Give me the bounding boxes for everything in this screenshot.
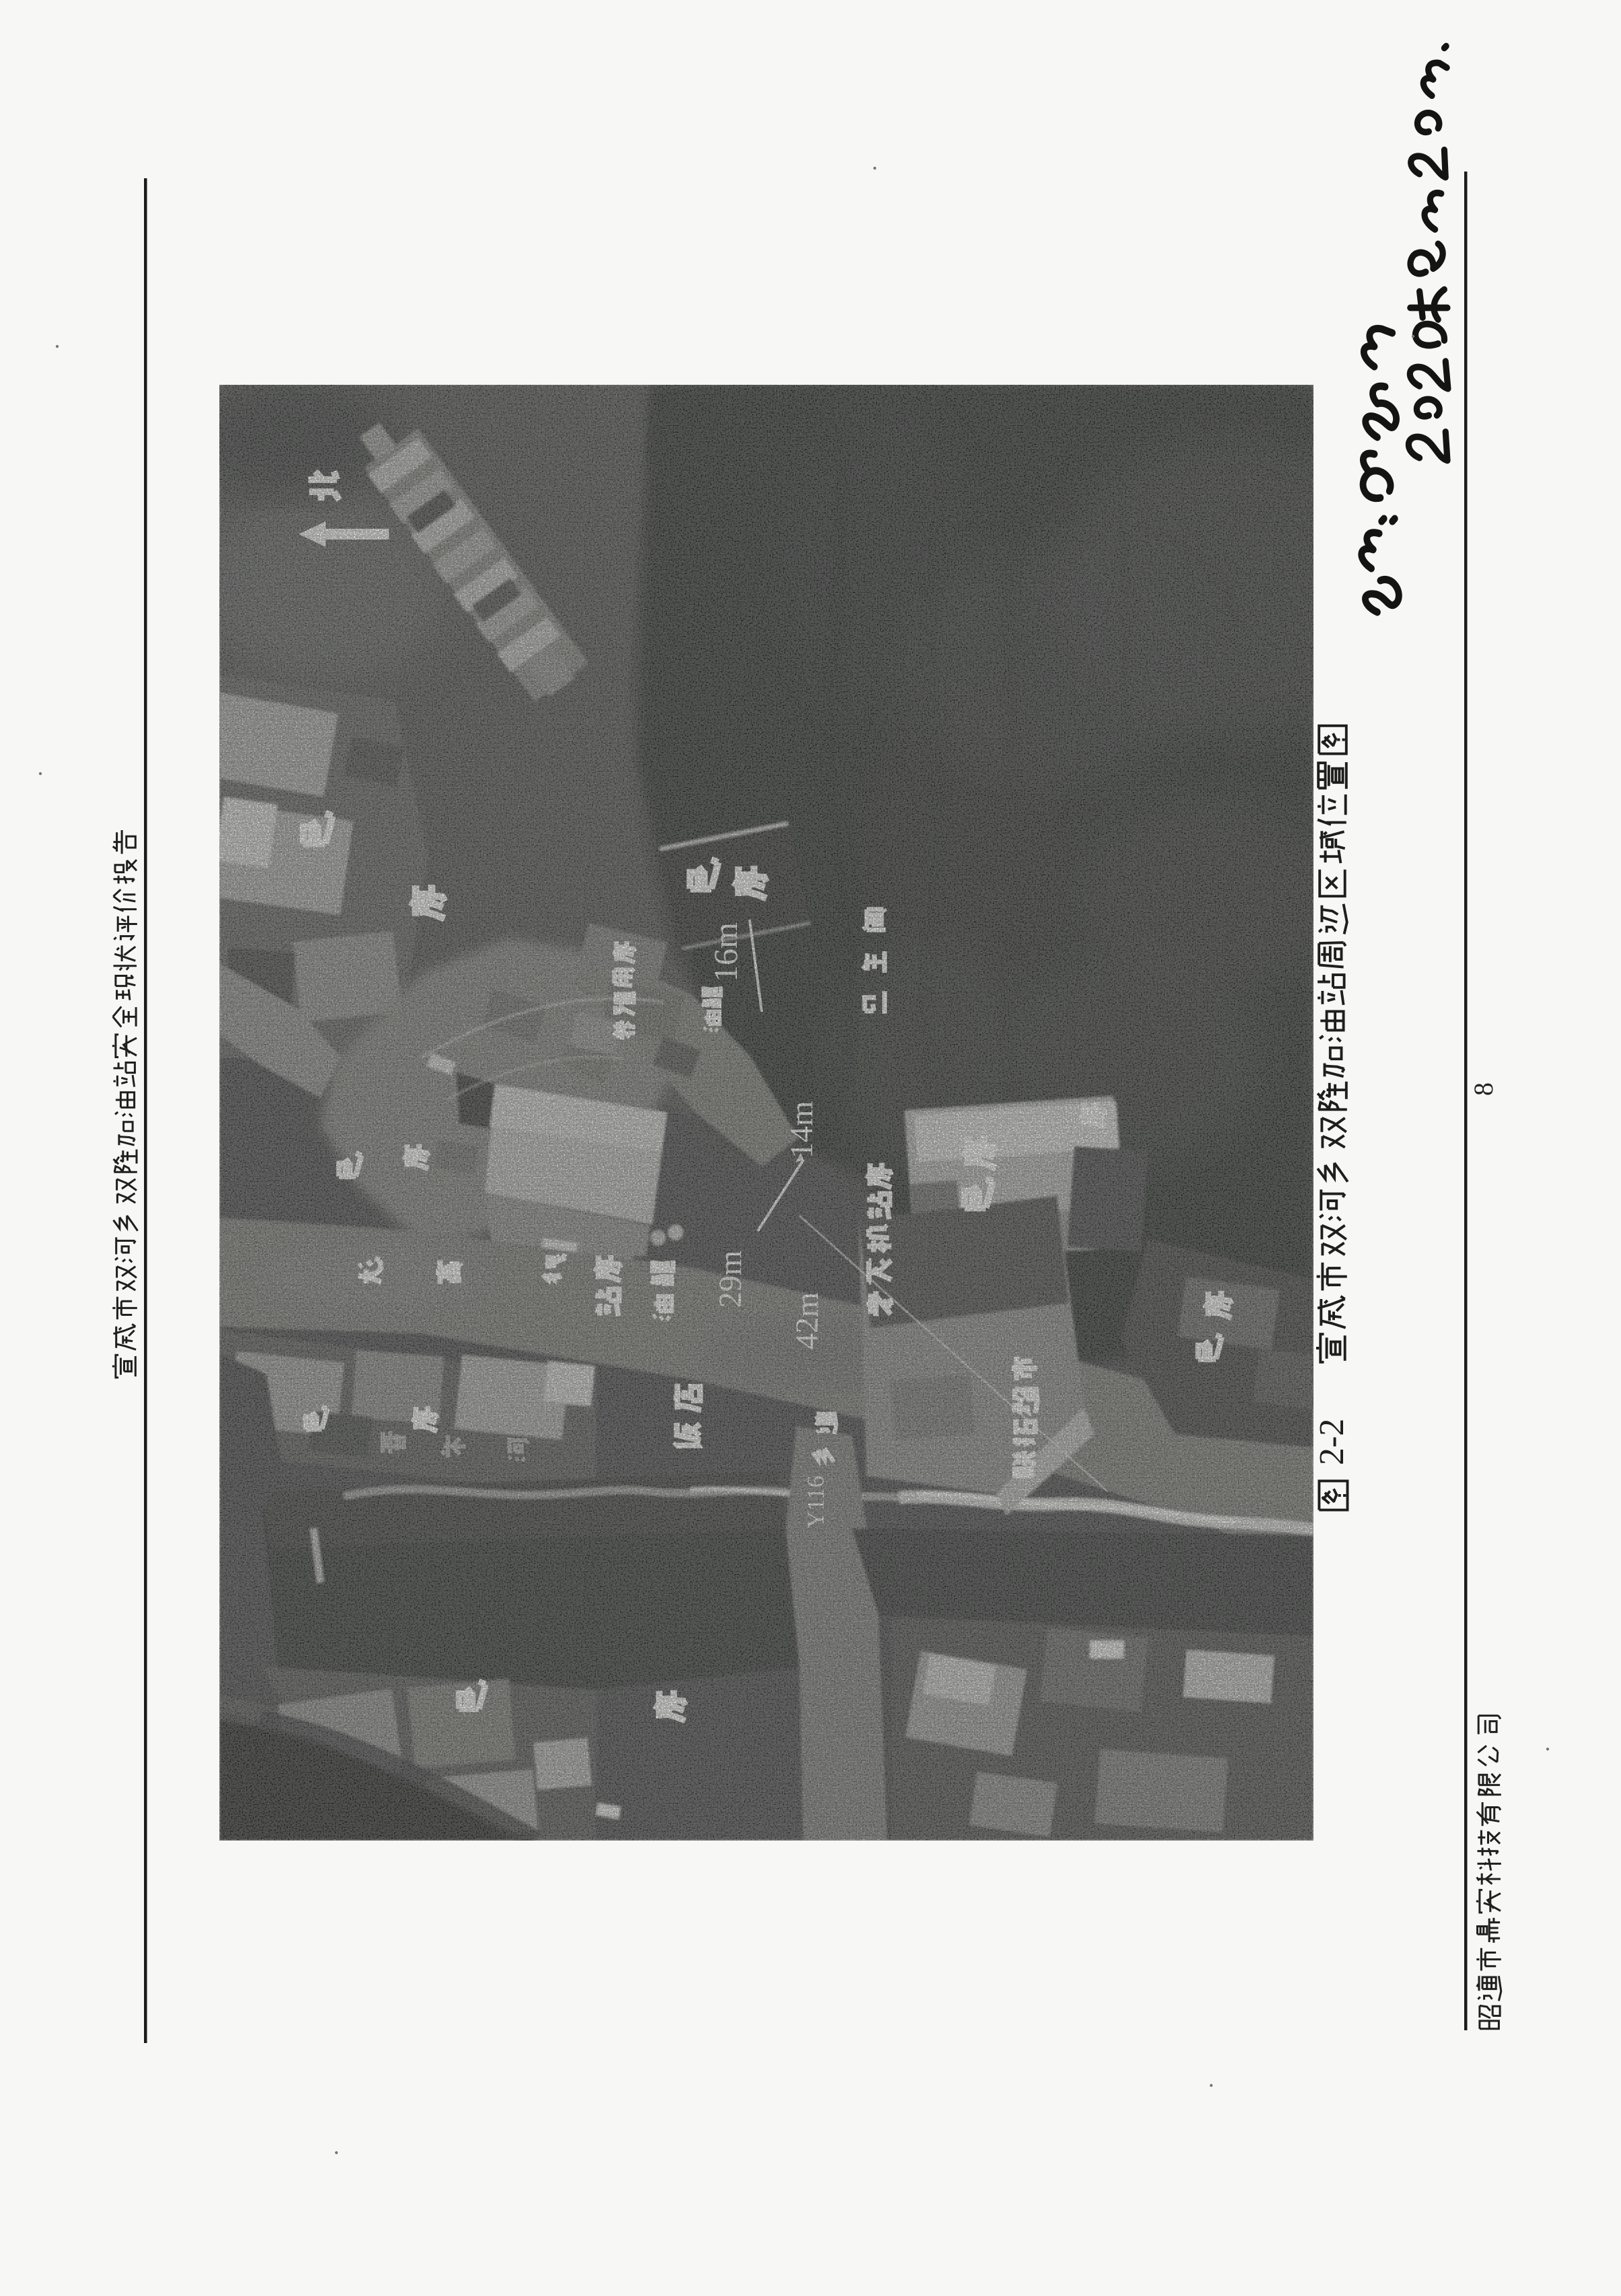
svg-text:8: 8	[1468, 1082, 1499, 1096]
svg-text:2-2: 2-2	[1313, 1419, 1351, 1465]
